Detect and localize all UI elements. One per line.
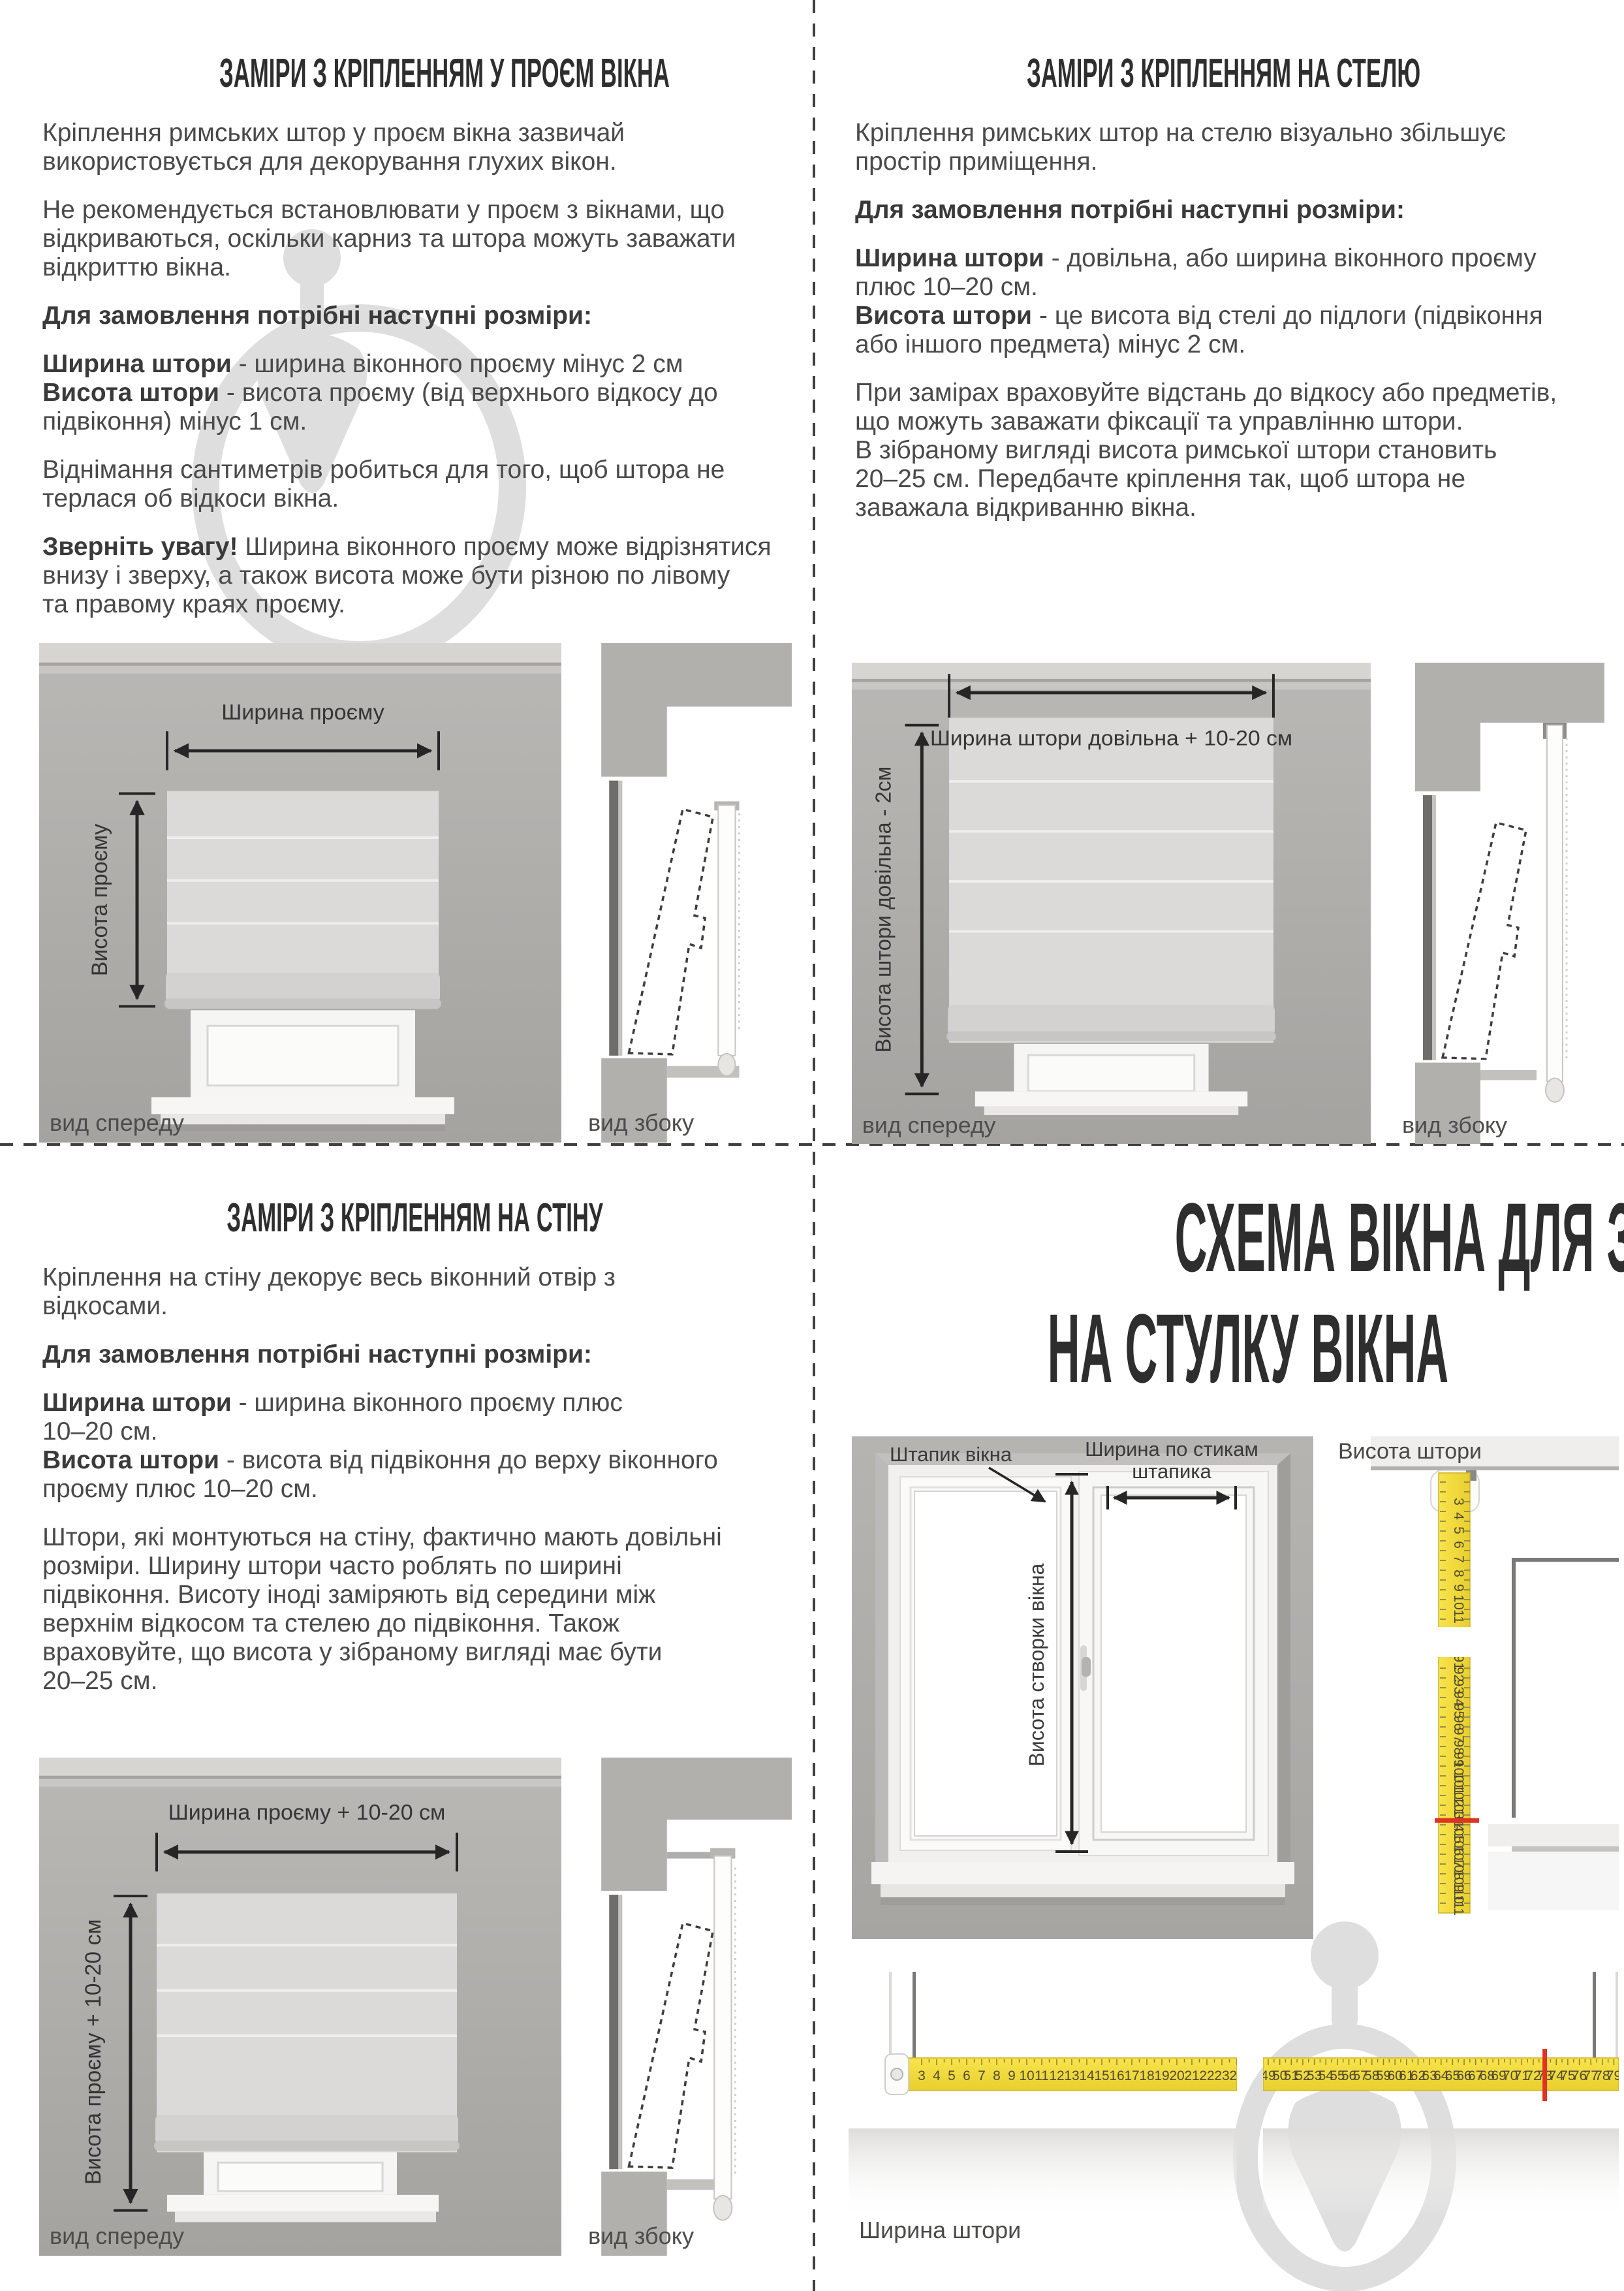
tape-number: 4: [933, 2068, 941, 2083]
paragraph: Зверніть увагу! Ширина віконного проєму …: [42, 533, 787, 619]
blind-profile: [1543, 723, 1567, 1102]
curtain-height-tape-figure: 34567891011 9192939495969798991001011021…: [1332, 1436, 1619, 1939]
tape-number: 7: [978, 2068, 986, 2083]
instruction-page: ЗАМІРИ З КРІПЛЕННЯМ У ПРОЄМ ВІКНА Кріпле…: [0, 0, 1624, 2291]
tape-number: 6: [1451, 1541, 1466, 1549]
tape-number: 22: [1199, 2068, 1214, 2083]
side-view-caption: вид збоку: [588, 1109, 694, 1136]
section-title: ЗАМІРИ З КРІПЛЕННЯМ НА СТЕЛЮ: [855, 51, 1593, 97]
figure-side-view-ceiling: вид збоку: [1397, 663, 1606, 1144]
tape-number: 3: [1451, 1498, 1466, 1506]
tape-number: 19: [1154, 2068, 1169, 2083]
measuring-tape-horizontal: 4950515253545556575859606162636465666768…: [1263, 2049, 1619, 2101]
height-arrow-label: Висота проєму: [87, 824, 112, 977]
curtain-width-tape-left: 3456789101112131415161718192021222324 Ши…: [849, 1972, 1237, 2259]
section-sash-scheme: СХЕМА ВІКНА ДЛЯ ЗАМІРІВ НА СТУЛКУ ВІКНА: [812, 1182, 1624, 1404]
paragraph: Віднімання сантиметрів робиться для того…: [42, 456, 787, 513]
width-arrow-label: Ширина проєму: [221, 700, 384, 725]
paragraph: Для замовлення потрібні наступні розміри…: [42, 302, 787, 330]
front-view-caption: вид спереду: [50, 2223, 184, 2249]
tape-number: 14: [1079, 2068, 1095, 2083]
tape-number: 79: [1606, 2068, 1619, 2083]
section-title: СХЕМА ВІКНА ДЛЯ ЗАМІРІВ НА СТУЛКУ ВІКНА: [812, 1182, 1624, 1404]
tape-number: 20: [1169, 2068, 1184, 2083]
paragraph: При замірах враховуйте відстань до відко…: [855, 379, 1593, 522]
tape-number: 21: [1184, 2068, 1199, 2083]
paragraph: Для замовлення потрібні наступні розміри…: [855, 196, 1593, 225]
tape-number: 24: [1229, 2068, 1237, 2083]
curtain-width-tape-right: 4950515253545556575859606162636465666768…: [1263, 1972, 1619, 2259]
figure-side-view-wall: вид збоку: [583, 1758, 793, 2256]
body-text: Кріплення на стіну декорує весь віконний…: [42, 1263, 787, 1696]
tape-number: 10: [1451, 1594, 1466, 1609]
figure-side-view-opening: вид збоку: [583, 643, 793, 1143]
curtain-height-caption: Висота штори: [1338, 1439, 1482, 1464]
paragraph: Не рекомендується встановлювати у проєм …: [42, 196, 787, 282]
section-title: ЗАМІРИ З КРІПЛЕННЯМ НА СТІНУ: [42, 1195, 787, 1241]
bead-label: Штапик вікна: [890, 1443, 1012, 1466]
paragraph: Кріплення римських штор на стелю візуаль…: [855, 119, 1593, 176]
tape-number: 15: [1094, 2068, 1109, 2083]
paragraph: Кріплення на стіну декорує весь віконний…: [42, 1263, 787, 1321]
tape-number: 9: [1008, 2068, 1016, 2083]
roman-blind: [946, 718, 1276, 1043]
tape-number: 11: [1451, 1609, 1466, 1624]
blind-profile: [714, 801, 739, 1075]
tape-number: 16: [1109, 2068, 1124, 2083]
paragraph: Для замовлення потрібні наступні розміри…: [42, 1340, 787, 1369]
tape-number: 8: [1451, 1570, 1466, 1577]
tape-number: 3: [918, 2068, 926, 2083]
red-measure-mark: [1542, 2049, 1547, 2101]
tape-number: 6: [963, 2068, 971, 2083]
measuring-tape-vertical: 34567891011 9192939495969798991001011021…: [1433, 1473, 1479, 1916]
height-arrow-label: Висота проєму + 10-20 см: [81, 1920, 106, 2185]
sash-outline-dashed: [629, 809, 713, 1054]
paragraph: Кріплення римських штор у проєм вікна за…: [42, 119, 787, 176]
bead-width-label-line2: штапика: [1132, 1460, 1211, 1483]
tape-number: 5: [948, 2068, 956, 2083]
window-scheme-diagram: Висота створки вікна Штапик вікна Ширина…: [852, 1436, 1313, 1939]
blind-profile: [667, 1848, 736, 2220]
tape-number: 13: [1064, 2068, 1079, 2083]
section-wall: ЗАМІРИ З КРІПЛЕННЯМ НА СТІНУ Кріплення н…: [42, 1195, 787, 1715]
paragraph: Ширина штори - довільна, або ширина віко…: [855, 244, 1593, 359]
tape-number: 4: [1451, 1512, 1466, 1520]
section-ceiling: ЗАМІРИ З КРІПЛЕННЯМ НА СТЕЛЮ Кріплення р…: [855, 51, 1593, 542]
side-view-caption: вид збоку: [1402, 1113, 1507, 1137]
roman-blind: [154, 1893, 460, 2152]
tape-number: 5: [1451, 1526, 1466, 1534]
figure-front-view-wall: Ширина проєму + 10-20 см Висота проєму +…: [39, 1758, 561, 2256]
tape-number: 8: [993, 2068, 1001, 2083]
sash-outline-dashed: [1443, 823, 1526, 1059]
tape-number: 9: [1451, 1584, 1466, 1592]
sash-outline-dashed: [629, 1923, 713, 2168]
front-view-caption: вид спереду: [50, 1110, 184, 1136]
tape-number: 10: [1019, 2068, 1034, 2083]
tape-number: 18: [1139, 2068, 1154, 2083]
roman-blind: [164, 791, 441, 1009]
section-opening: ЗАМІРИ З КРІПЛЕННЯМ У ПРОЄМ ВІКНА Кріпле…: [42, 51, 787, 639]
bead-width-label-line1: Ширина по стикам: [1085, 1438, 1258, 1461]
width-arrow-label: Ширина штори довільна + 10-20 см: [930, 727, 1292, 750]
body-text: Кріплення римських штор на стелю візуаль…: [855, 119, 1593, 522]
paragraph: Штори, які монтуються на стіну, фактично…: [42, 1523, 787, 1696]
figure-front-view-opening: Ширина проєму Висота проєму вид спереду: [39, 643, 561, 1143]
red-measure-mark: [1435, 1818, 1479, 1823]
tape-number: 23: [1214, 2068, 1229, 2083]
front-view-caption: вид спереду: [862, 1113, 996, 1137]
paragraph: Ширина штори - ширина віконного проєму м…: [42, 350, 787, 436]
paragraph: Ширина штори - ширина віконного проєму п…: [42, 1389, 787, 1504]
figure-front-view-ceiling: Ширина штори довільна + 10-20 см Висота …: [852, 663, 1371, 1144]
sash-height-label: Висота створки вікна: [1025, 1563, 1048, 1766]
section-title: ЗАМІРИ З КРІПЛЕННЯМ У ПРОЄМ ВІКНА: [42, 51, 787, 97]
side-view-caption: вид збоку: [588, 2222, 694, 2249]
width-arrow-label: Ширина проєму + 10-20 см: [168, 1800, 446, 1825]
measuring-tape-horizontal: 3456789101112131415161718192021222324: [885, 2054, 1237, 2094]
divider-horizontal: [0, 1143, 1624, 1146]
tape-number: 7: [1451, 1555, 1466, 1563]
tape-number: 17: [1124, 2068, 1139, 2083]
tape-number: 111: [1451, 1895, 1466, 1916]
tape-number: 12: [1049, 2068, 1064, 2083]
tape-number: 11: [1035, 2068, 1049, 2083]
height-arrow-label: Висота штори довільна - 2см: [871, 766, 896, 1053]
body-text: Кріплення римських штор у проєм вікна за…: [42, 119, 787, 619]
curtain-width-caption: Ширина штори: [859, 2217, 1021, 2243]
